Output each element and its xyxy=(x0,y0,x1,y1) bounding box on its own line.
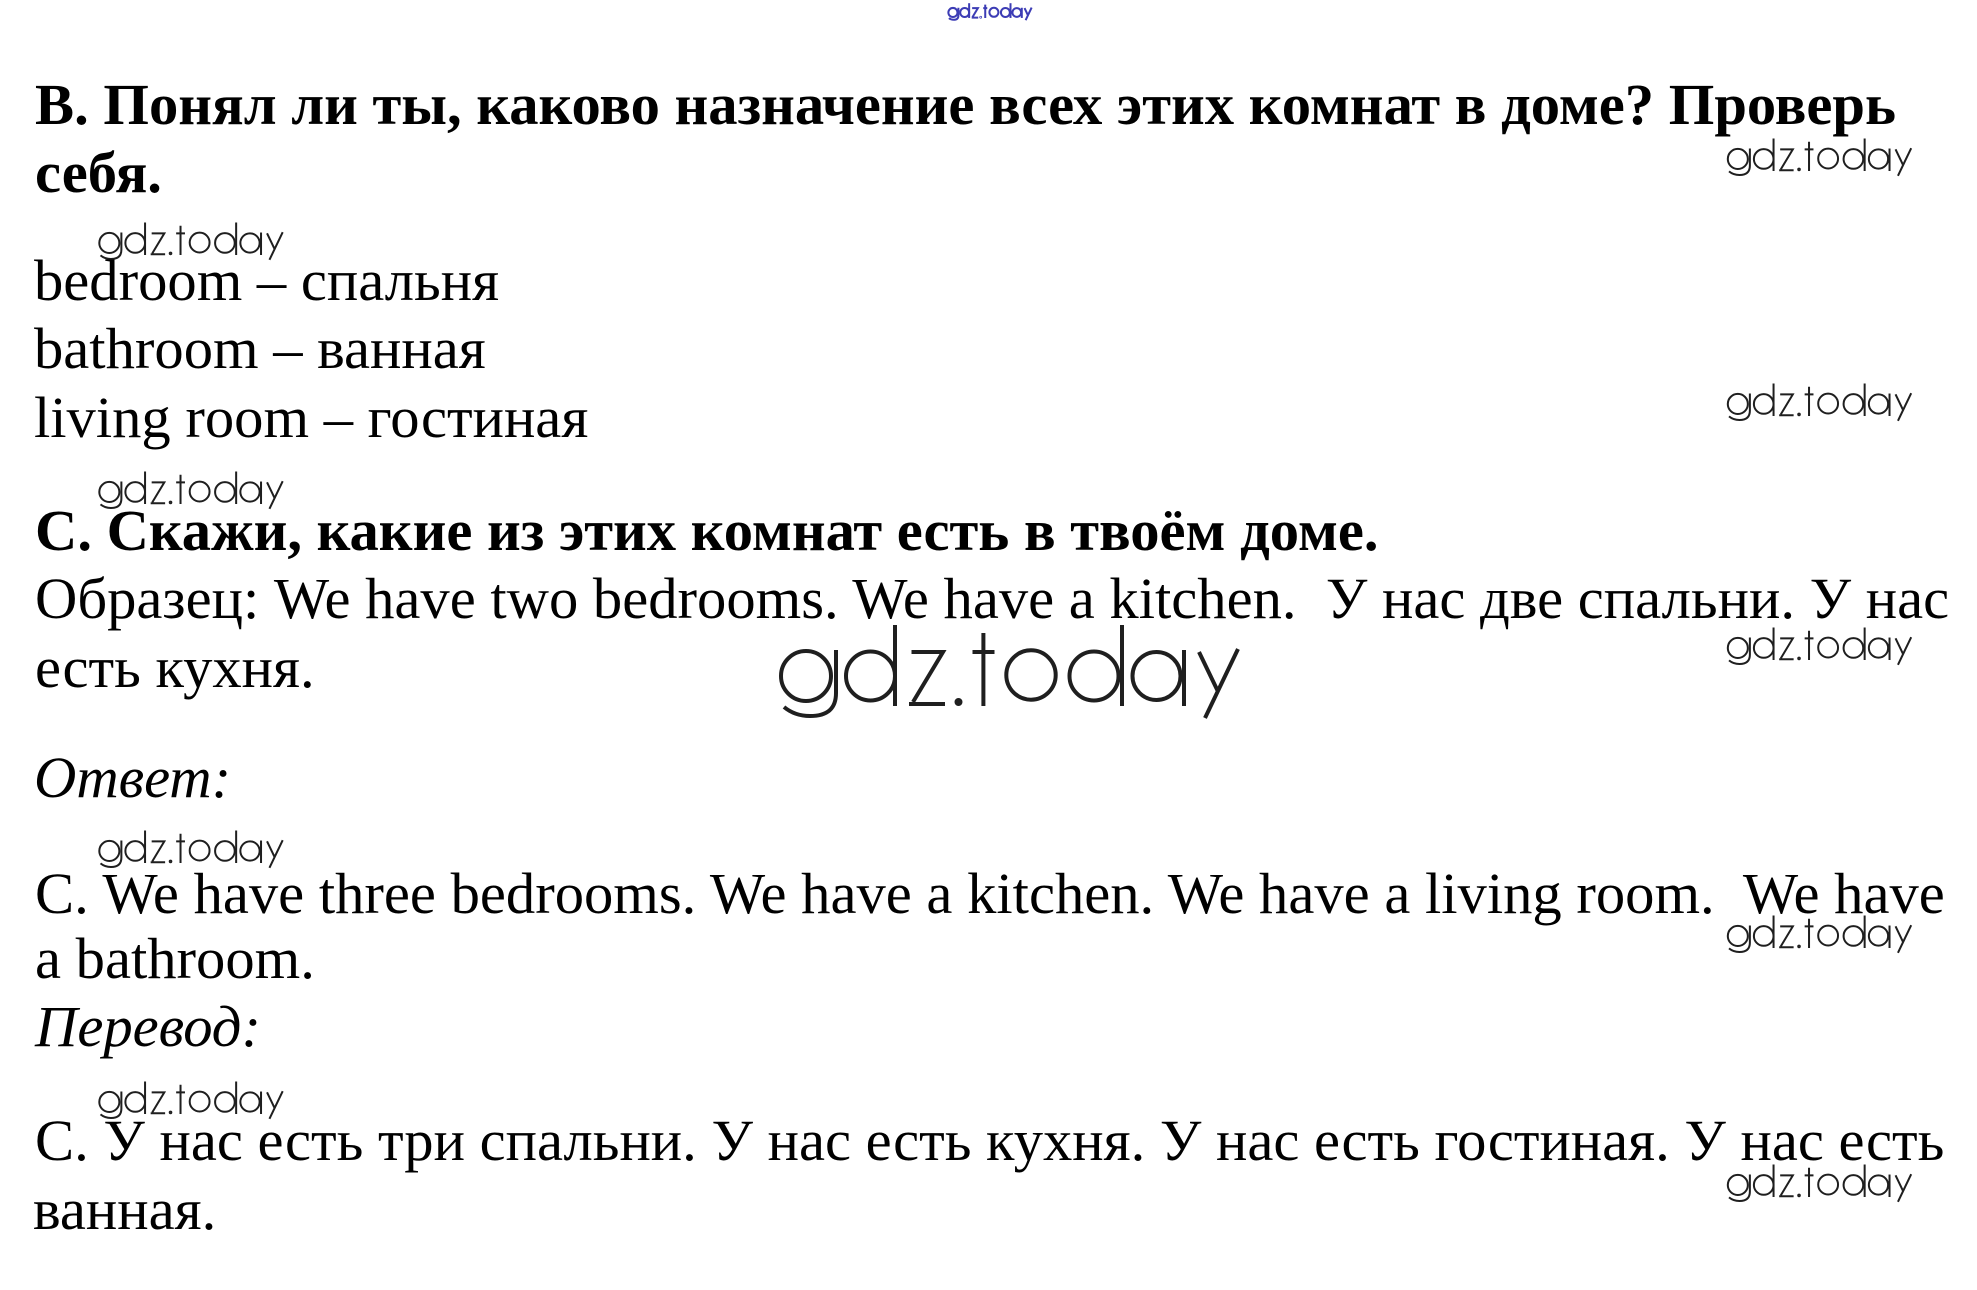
svg-text:ванная.: ванная. xyxy=(33,1177,216,1242)
svg-text:C. У нас есть три спальни. У н: C. У нас есть три спальни. У нас есть ку… xyxy=(35,1108,1944,1173)
svg-text:C. We have three bedrooms. We: C. We have three bedrooms. We have a kit… xyxy=(35,861,1945,926)
svg-text:себя.: себя. xyxy=(35,140,162,205)
svg-text:living room – гостиная: living room – гостиная xyxy=(34,385,588,450)
svg-text:Образец: We have two bedrooms.: Образец: We have two bedrooms. We have a… xyxy=(35,566,1949,631)
svg-text:bathroom – ванная: bathroom – ванная xyxy=(34,316,486,381)
svg-text:Ответ:: Ответ: xyxy=(34,745,231,810)
svg-text:В. Понял ли ты, каково назначе: В. Понял ли ты, каково назначение всех э… xyxy=(35,72,1896,137)
svg-text:bedroom – спальня: bedroom – спальня xyxy=(34,248,499,313)
svg-text:Перевод:: Перевод: xyxy=(34,994,261,1059)
svg-text:есть кухня.: есть кухня. xyxy=(35,635,315,700)
svg-text:a bathroom.: a bathroom. xyxy=(35,926,315,991)
svg-text:С. Скажи, какие из этих комнат: С. Скажи, какие из этих комнат есть в тв… xyxy=(35,498,1379,563)
